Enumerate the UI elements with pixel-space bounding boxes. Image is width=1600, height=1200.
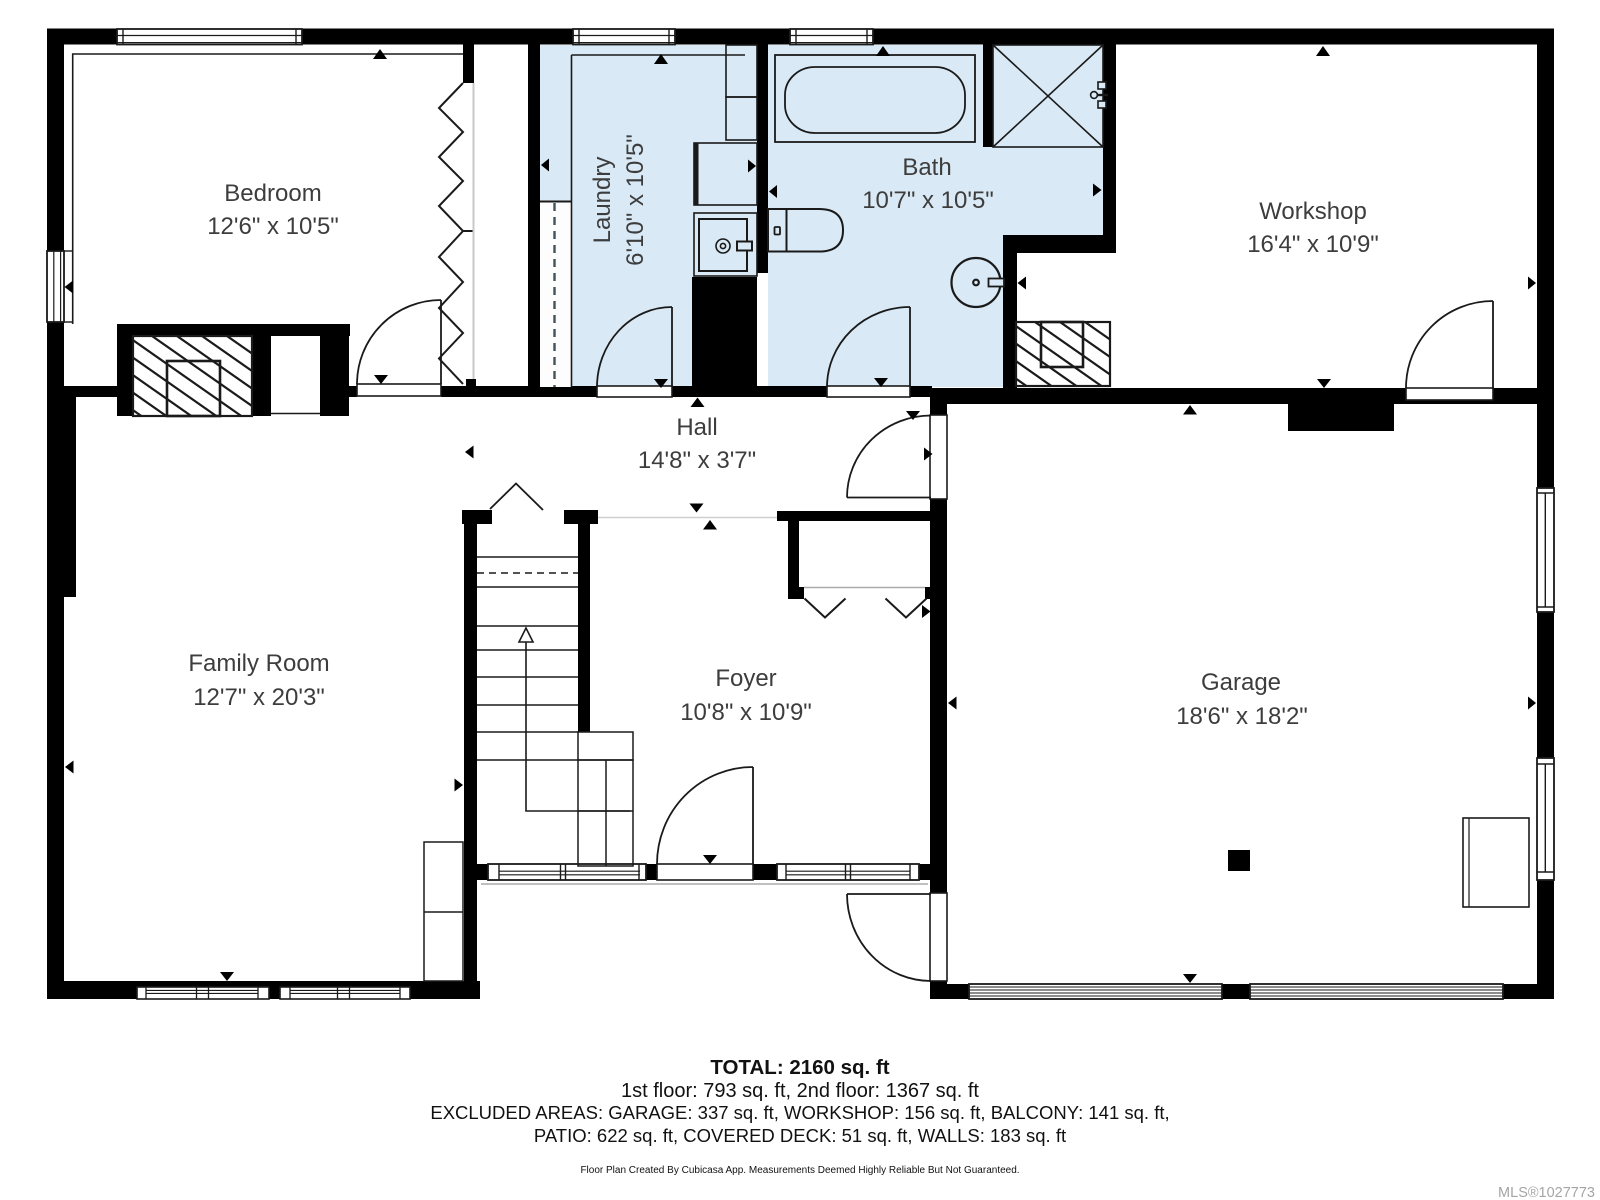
svg-text:PATIO: 622 sq. ft, COVERED DEC: PATIO: 622 sq. ft, COVERED DECK: 51 sq. … <box>534 1125 1066 1146</box>
svg-text:10'8" x 10'9": 10'8" x 10'9" <box>680 699 812 726</box>
svg-text:Bath: Bath <box>902 154 951 181</box>
svg-text:Floor Plan Created By Cubicasa: Floor Plan Created By Cubicasa App. Meas… <box>580 1165 1019 1176</box>
svg-text:16'4" x 10'9": 16'4" x 10'9" <box>1247 231 1379 258</box>
svg-text:Laundry: Laundry <box>589 157 616 244</box>
svg-text:EXCLUDED AREAS: GARAGE: 337 sq: EXCLUDED AREAS: GARAGE: 337 sq. ft, WORK… <box>430 1102 1169 1123</box>
svg-text:TOTAL: 2160 sq. ft: TOTAL: 2160 sq. ft <box>710 1056 889 1079</box>
svg-text:6'10" x 10'5": 6'10" x 10'5" <box>622 134 649 266</box>
svg-text:10'7" x 10'5": 10'7" x 10'5" <box>862 187 994 214</box>
svg-text:Workshop: Workshop <box>1259 198 1367 225</box>
svg-text:Foyer: Foyer <box>715 665 776 692</box>
svg-text:12'7" x 20'3": 12'7" x 20'3" <box>193 684 325 711</box>
svg-text:14'8" x 3'7": 14'8" x 3'7" <box>638 447 756 474</box>
svg-text:Bedroom: Bedroom <box>224 180 321 207</box>
svg-text:1st floor: 793 sq. ft, 2nd flo: 1st floor: 793 sq. ft, 2nd floor: 1367 s… <box>621 1080 979 1102</box>
svg-text:Garage: Garage <box>1201 669 1281 696</box>
svg-text:12'6" x 10'5": 12'6" x 10'5" <box>207 213 339 240</box>
svg-text:Hall: Hall <box>676 414 717 441</box>
svg-text:MLS®1027773: MLS®1027773 <box>1498 1185 1595 1200</box>
svg-text:Family Room: Family Room <box>188 650 329 677</box>
svg-text:18'6" x 18'2": 18'6" x 18'2" <box>1176 703 1308 730</box>
